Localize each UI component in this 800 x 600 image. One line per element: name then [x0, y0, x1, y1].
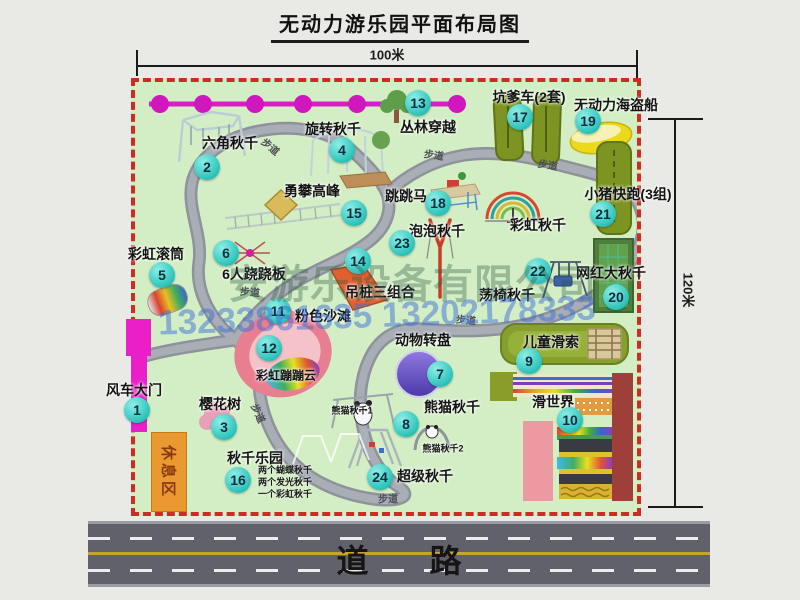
- rest-area-label: 休息区: [159, 445, 180, 499]
- label-2: 六角秋千: [202, 133, 258, 153]
- rainbow-roller-icon: [144, 281, 190, 319]
- label-7: 动物转盘: [395, 330, 451, 350]
- marker-24: 24: [367, 464, 393, 490]
- label-23: 泡泡秋千: [409, 221, 465, 241]
- marker-18: 18: [425, 190, 451, 216]
- walkway-label-1: 步道: [423, 145, 445, 163]
- label-3: 樱花树: [199, 394, 241, 414]
- marker-4: 4: [329, 137, 355, 163]
- windmill-gate-icon: [126, 319, 151, 356]
- feature-label-0: 彩虹秋千: [510, 215, 566, 235]
- width-dimension-label: 100米: [370, 45, 405, 64]
- marker-9: 9: [516, 348, 542, 374]
- marker-8: 8: [393, 411, 419, 437]
- label-11: 粉色沙滩: [295, 306, 351, 326]
- walkway-label-6: 步道: [378, 491, 398, 506]
- marker-16-sublabels: 两个蝴蝶秋千两个发光秋千一个彩虹秋千: [258, 464, 312, 500]
- marker-12: 12: [256, 335, 282, 361]
- marker-1: 1: [124, 397, 150, 423]
- marker-19: 19: [575, 108, 601, 134]
- label-15: 勇攀高峰: [284, 181, 340, 201]
- road: 道 路: [88, 521, 710, 587]
- feature-label-1: 熊猫秋千1: [331, 404, 372, 417]
- height-dimension-label: 120米: [680, 273, 699, 308]
- height-dimension-tick-top: [648, 118, 703, 120]
- marker-16: 16: [225, 467, 251, 493]
- marker-17: 17: [507, 104, 533, 130]
- label-8: 熊猫秋千: [424, 397, 480, 417]
- width-dimension-tick-left: [136, 50, 138, 76]
- label-5: 彩虹滚筒: [128, 244, 184, 264]
- screenshot-root: 无动力游乐园平面布局图 100米 120米: [0, 0, 800, 600]
- feature-label-2: 熊猫秋千2: [422, 442, 463, 455]
- marker-13: 13: [405, 90, 431, 116]
- marker-10: 10: [557, 407, 583, 433]
- height-dimension-tick-bottom: [648, 506, 703, 508]
- road-label: 道 路: [88, 536, 710, 582]
- height-dimension-line: [674, 118, 676, 508]
- label-12: 彩虹蹦蹦云: [256, 367, 316, 384]
- label-18: 跳跳马: [385, 186, 427, 206]
- width-dimension-line: [137, 65, 637, 67]
- walkway-label-2: 步道: [537, 155, 559, 173]
- label-13: 丛林穿越: [400, 117, 456, 137]
- label-6: 6人跷跷板: [222, 264, 286, 284]
- marker-3: 3: [211, 414, 237, 440]
- rest-area: 休息区: [151, 432, 187, 512]
- marker-11: 11: [265, 298, 291, 324]
- marker-23: 23: [389, 230, 415, 256]
- label-14: 吊桩三组合: [345, 282, 415, 302]
- walkway-label-3: 步道: [239, 283, 260, 300]
- marker-7: 7: [427, 361, 453, 387]
- label-22: 荡椅秋千: [479, 285, 535, 305]
- label-4: 旋转秋千: [305, 119, 361, 139]
- marker-14: 14: [345, 248, 371, 274]
- marker-21: 21: [590, 201, 616, 227]
- swing-park-ghost-icon: [293, 434, 369, 464]
- marker-5: 5: [149, 262, 175, 288]
- marker-6: 6: [213, 240, 239, 266]
- marker-15: 15: [341, 200, 367, 226]
- label-17: 坑爹车(2套): [492, 87, 565, 107]
- walkway-label-4: 步道: [455, 311, 476, 328]
- page-title: 无动力游乐园平面布局图: [271, 8, 529, 43]
- label-24: 超级秋千: [397, 466, 453, 486]
- marker-22: 22: [525, 258, 551, 284]
- label-20: 网红大秋千: [576, 263, 646, 283]
- marker-20: 20: [603, 284, 629, 310]
- marker-2: 2: [194, 154, 220, 180]
